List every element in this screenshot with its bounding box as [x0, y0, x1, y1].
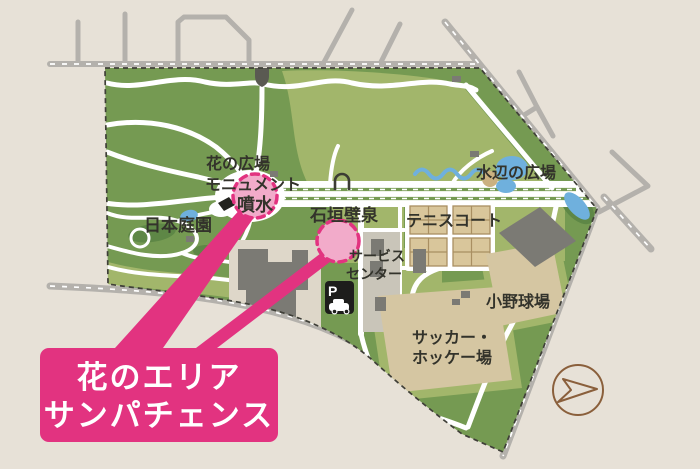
label-waterside-plaza: 水辺の広場: [476, 163, 556, 182]
label-stone-wall-fountain: 石垣壁泉: [309, 205, 379, 225]
callout-line2: サンパチェンス: [44, 398, 274, 433]
flower-area-callout: 花のエリア サンパチェンス: [40, 348, 278, 442]
label-monument: モニュメント: [205, 177, 301, 194]
label-soccer-hockey-1: サッカー・: [412, 329, 492, 347]
label-japanese-garden: 日本庭園: [144, 215, 212, 235]
label-flower-plaza: 花の広場: [206, 154, 270, 173]
parking-p-label: P: [328, 283, 337, 299]
park-map: P 花の広場 モニュメント 噴水 日本庭園 石垣壁泉 水辺の広場 テニスコート …: [0, 0, 700, 469]
label-fountain: 噴水: [237, 194, 274, 215]
label-service-center-2: センター: [346, 266, 402, 282]
park-map-svg: P 花の広場 モニュメント 噴水 日本庭園 石垣壁泉 水辺の広場 テニスコート …: [0, 0, 700, 469]
parking-icon: P: [325, 281, 354, 314]
label-baseball-field: 小野球場: [486, 292, 550, 311]
label-tennis-court: テニスコート: [406, 213, 502, 230]
callout-line1: 花のエリア: [77, 360, 242, 395]
label-soccer-hockey-2: ホッケー場: [412, 349, 492, 367]
label-service-center-1: サービス: [349, 248, 405, 264]
